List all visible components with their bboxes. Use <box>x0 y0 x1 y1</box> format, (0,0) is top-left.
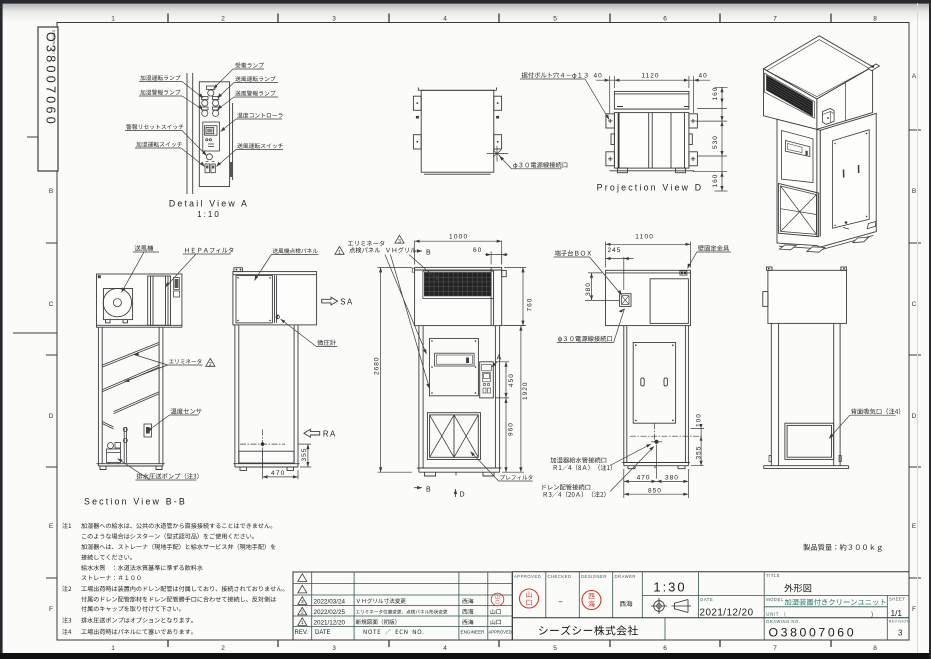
svg-text:O38007060: O38007060 <box>769 626 857 640</box>
svg-text:4: 4 <box>443 645 447 652</box>
svg-text:7: 7 <box>773 645 777 652</box>
svg-text:1: 1 <box>111 16 115 23</box>
svg-text:D: D <box>912 413 917 420</box>
svg-text:B: B <box>426 486 431 493</box>
svg-text:D: D <box>49 413 54 420</box>
svg-text:C: C <box>49 301 54 308</box>
svg-text:−: − <box>558 598 563 607</box>
svg-text:1920: 1920 <box>522 382 529 400</box>
svg-text:ENGINEER: ENGINEER <box>461 630 486 635</box>
svg-text:DATE: DATE <box>700 597 713 602</box>
svg-text:5: 5 <box>553 645 557 652</box>
svg-text:850: 850 <box>648 487 662 494</box>
svg-text:470: 470 <box>271 470 285 477</box>
svg-text:40: 40 <box>699 73 708 80</box>
svg-text:2: 2 <box>221 16 225 23</box>
svg-text:450: 450 <box>508 373 515 387</box>
svg-text:355: 355 <box>301 448 308 462</box>
svg-text:470: 470 <box>637 474 651 481</box>
svg-text:160: 160 <box>712 174 719 188</box>
svg-text:380: 380 <box>585 282 592 296</box>
svg-text:): ) <box>871 611 873 618</box>
svg-text:2: 2 <box>301 610 304 616</box>
svg-text:A: A <box>497 355 502 362</box>
svg-text:2021/12/20: 2021/12/20 <box>314 619 346 626</box>
svg-text:1: 1 <box>338 250 341 256</box>
svg-text:530: 530 <box>712 135 719 149</box>
svg-text:1120: 1120 <box>642 73 660 80</box>
svg-text:SA: SA <box>340 297 353 306</box>
svg-text:C: C <box>912 301 917 308</box>
svg-text:8: 8 <box>873 16 877 23</box>
svg-text:1000: 1000 <box>449 234 468 241</box>
svg-text:E: E <box>49 523 54 530</box>
svg-text:2680: 2680 <box>374 357 381 375</box>
svg-text:2021/12/20: 2021/12/20 <box>700 608 754 619</box>
svg-text:Detail View A: Detail View A <box>169 199 249 209</box>
svg-text:1: 1 <box>111 645 115 652</box>
svg-text:60: 60 <box>473 247 482 254</box>
svg-text:3: 3 <box>301 599 304 605</box>
svg-text:2022/03/24: 2022/03/24 <box>314 598 346 605</box>
svg-text:1: 1 <box>301 620 304 626</box>
svg-text:1100: 1100 <box>635 234 654 241</box>
svg-text:2022/02/25: 2022/02/25 <box>314 609 346 616</box>
svg-text:APPROVED: APPROVED <box>514 574 541 579</box>
svg-text:B: B <box>49 188 53 195</box>
svg-text:CHECKED: CHECKED <box>548 574 572 579</box>
svg-text:380: 380 <box>665 474 679 481</box>
svg-text:F: F <box>912 606 916 613</box>
svg-text:REV.: REV. <box>295 630 309 636</box>
svg-text:2: 2 <box>209 362 212 368</box>
svg-text:7: 7 <box>773 16 777 23</box>
svg-text:Section View B-B: Section View B-B <box>84 497 187 507</box>
svg-text:D: D <box>460 492 465 499</box>
svg-text:160: 160 <box>712 87 719 101</box>
svg-text:E: E <box>912 523 917 530</box>
svg-text:DRAWER: DRAWER <box>615 574 636 579</box>
svg-text:960: 960 <box>507 422 514 436</box>
svg-text:3: 3 <box>332 16 336 23</box>
svg-text:6: 6 <box>663 16 667 23</box>
svg-text:TITLE: TITLE <box>766 573 780 578</box>
svg-text:245: 245 <box>608 247 622 254</box>
svg-text:1/1: 1/1 <box>891 608 903 618</box>
svg-text:1:10: 1:10 <box>197 210 221 219</box>
svg-text:Projection View D: Projection View D <box>597 183 704 193</box>
svg-text:100: 100 <box>696 413 703 427</box>
svg-text:3: 3 <box>398 239 401 245</box>
svg-text:760: 760 <box>527 298 534 312</box>
svg-text:5: 5 <box>553 16 557 23</box>
svg-text:4: 4 <box>443 16 447 23</box>
svg-text:DESIGNER: DESIGNER <box>581 574 607 579</box>
svg-text:APPROVED: APPROVED <box>489 630 512 635</box>
svg-text:A: A <box>912 73 917 80</box>
svg-text:F: F <box>49 606 53 613</box>
svg-text:40: 40 <box>594 73 603 80</box>
svg-text:MODEL: MODEL <box>766 597 784 602</box>
svg-text:6: 6 <box>663 645 667 652</box>
svg-text:2: 2 <box>221 645 225 652</box>
svg-text:B: B <box>912 188 916 195</box>
svg-text:3: 3 <box>332 645 336 652</box>
svg-text:RA: RA <box>323 430 337 439</box>
svg-text:8: 8 <box>873 645 877 652</box>
svg-text:DRAWING NO.: DRAWING NO. <box>52 30 56 55</box>
svg-text:REVISION: REVISION <box>889 619 910 623</box>
svg-text:SHEET: SHEET <box>889 596 905 601</box>
svg-text:3: 3 <box>898 629 903 638</box>
svg-text:355: 355 <box>696 446 703 460</box>
svg-text:DATE: DATE <box>315 630 331 636</box>
svg-text:DRAWING NO.: DRAWING NO. <box>766 619 800 624</box>
svg-text:B: B <box>426 250 431 257</box>
svg-text:1:30: 1:30 <box>653 580 686 595</box>
